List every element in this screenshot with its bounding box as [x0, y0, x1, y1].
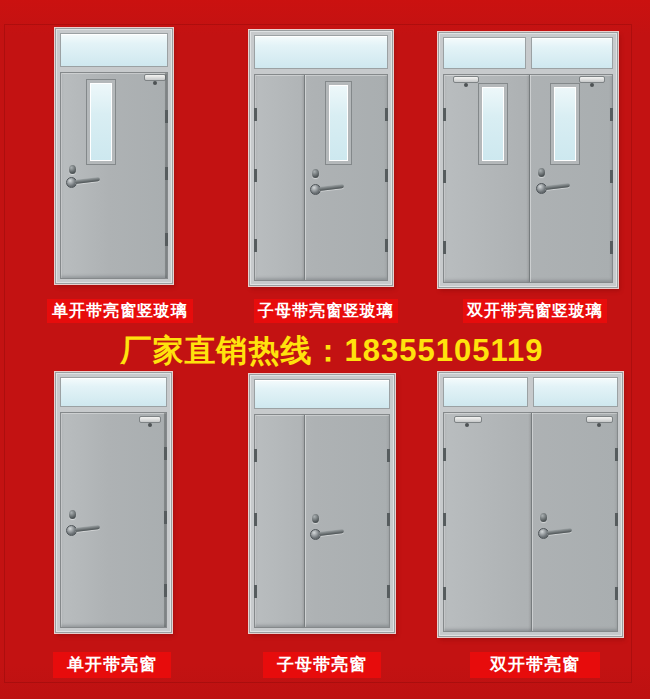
hinge-icon [254, 108, 257, 121]
lock-cylinder-icon [538, 168, 545, 177]
lever-bar-icon [75, 525, 100, 532]
transom-glass [443, 37, 526, 69]
vision-glass-panel [326, 82, 351, 164]
door-label: 单开带亮窗 [53, 652, 171, 678]
hinge-icon [610, 108, 613, 121]
transom-glass [533, 377, 618, 407]
hinge-icon [254, 239, 257, 252]
hinge-icon [254, 449, 257, 462]
lock-cylinder-icon [69, 510, 76, 519]
door-leaves [443, 412, 618, 632]
transom-window [443, 37, 613, 69]
door-figure-single [55, 372, 172, 633]
door-label: 双开带亮窗 [470, 652, 600, 678]
hinge-icon [615, 587, 618, 600]
hinge-icon [385, 108, 388, 121]
lock-cylinder-icon [69, 165, 76, 174]
hinge-icon [443, 108, 446, 121]
door-leaf [60, 412, 167, 628]
door-leaves [443, 74, 613, 283]
poster-canvas: 单开带亮窗竖玻璃 子母带亮窗竖玻璃 双开带亮窗竖玻璃 厂家直销热线：183551… [0, 0, 650, 699]
transom-window [60, 33, 168, 67]
lever-handle-icon [66, 177, 77, 188]
lever-handle-icon [310, 529, 321, 540]
transom-glass [443, 377, 528, 407]
lever-handle-icon [66, 525, 77, 536]
leaf-split-line [304, 75, 305, 280]
lock-cylinder-icon [312, 514, 319, 523]
hinge-icon [443, 448, 446, 461]
lever-handle-icon [538, 528, 549, 539]
door-closer-icon [586, 416, 613, 423]
hinge-icon [387, 449, 390, 462]
lock-cylinder-icon [540, 513, 547, 522]
vision-glass-panel [551, 84, 579, 164]
door-figure-double-vision-glass [438, 32, 618, 288]
door-label: 单开带亮窗竖玻璃 [47, 299, 193, 323]
hinge-icon [165, 167, 168, 180]
leaf-split-line [529, 75, 530, 282]
hinge-icon [610, 170, 613, 183]
hinge-icon [387, 513, 390, 526]
lever-bar-icon [319, 184, 344, 191]
hinge-icon [443, 170, 446, 183]
lever-handle-icon [310, 184, 321, 195]
door-figure-mother-child [249, 374, 395, 633]
hotline-text: 厂家直销热线：18355105119 [0, 330, 650, 372]
door-figure-single-vision-glass [55, 28, 173, 284]
door-closer-icon [139, 416, 161, 423]
door-leaf [60, 72, 168, 279]
door-leaves [254, 414, 390, 628]
transom-glass [60, 33, 168, 67]
hinge-icon [254, 169, 257, 182]
hinge-icon [165, 233, 168, 246]
lever-bar-icon [319, 529, 344, 536]
transom-window [254, 379, 390, 409]
lever-bar-icon [75, 177, 100, 184]
hinge-icon [610, 241, 613, 254]
hinge-icon [254, 585, 257, 598]
hinge-icon [164, 511, 167, 524]
hinge-icon [164, 447, 167, 460]
hinge-icon [165, 110, 168, 123]
door-closer-icon [579, 76, 605, 83]
lever-handle-icon [536, 183, 547, 194]
door-figure-double [438, 372, 623, 637]
hinge-icon [443, 587, 446, 600]
transom-glass [531, 37, 614, 69]
hinge-icon [385, 169, 388, 182]
hinge-icon [615, 513, 618, 526]
transom-glass [254, 379, 390, 409]
door-closer-icon [454, 416, 482, 423]
door-label: 双开带亮窗竖玻璃 [463, 299, 607, 323]
leaf-split-line [304, 415, 305, 627]
door-leaves [254, 74, 388, 281]
hinge-icon [387, 585, 390, 598]
door-closer-icon [453, 76, 479, 83]
lever-bar-icon [547, 528, 572, 535]
hinge-icon [443, 513, 446, 526]
transom-window [443, 377, 618, 407]
hinge-icon [615, 448, 618, 461]
door-closer-icon [144, 74, 166, 81]
hinge-icon [385, 239, 388, 252]
vision-glass-panel [87, 80, 115, 164]
transom-window [254, 35, 388, 69]
transom-window [60, 377, 167, 407]
door-label: 子母带亮窗 [263, 652, 381, 678]
transom-glass [60, 377, 167, 407]
transom-glass [254, 35, 388, 69]
hinge-icon [164, 584, 167, 597]
vision-glass-panel [479, 84, 507, 164]
door-figure-mother-child-vision-glass [249, 30, 393, 286]
door-label: 子母带亮窗竖玻璃 [254, 299, 398, 323]
hinge-icon [443, 241, 446, 254]
hinge-icon [254, 513, 257, 526]
leaf-split-line [531, 413, 532, 631]
lever-bar-icon [545, 183, 570, 190]
lock-cylinder-icon [312, 169, 319, 178]
